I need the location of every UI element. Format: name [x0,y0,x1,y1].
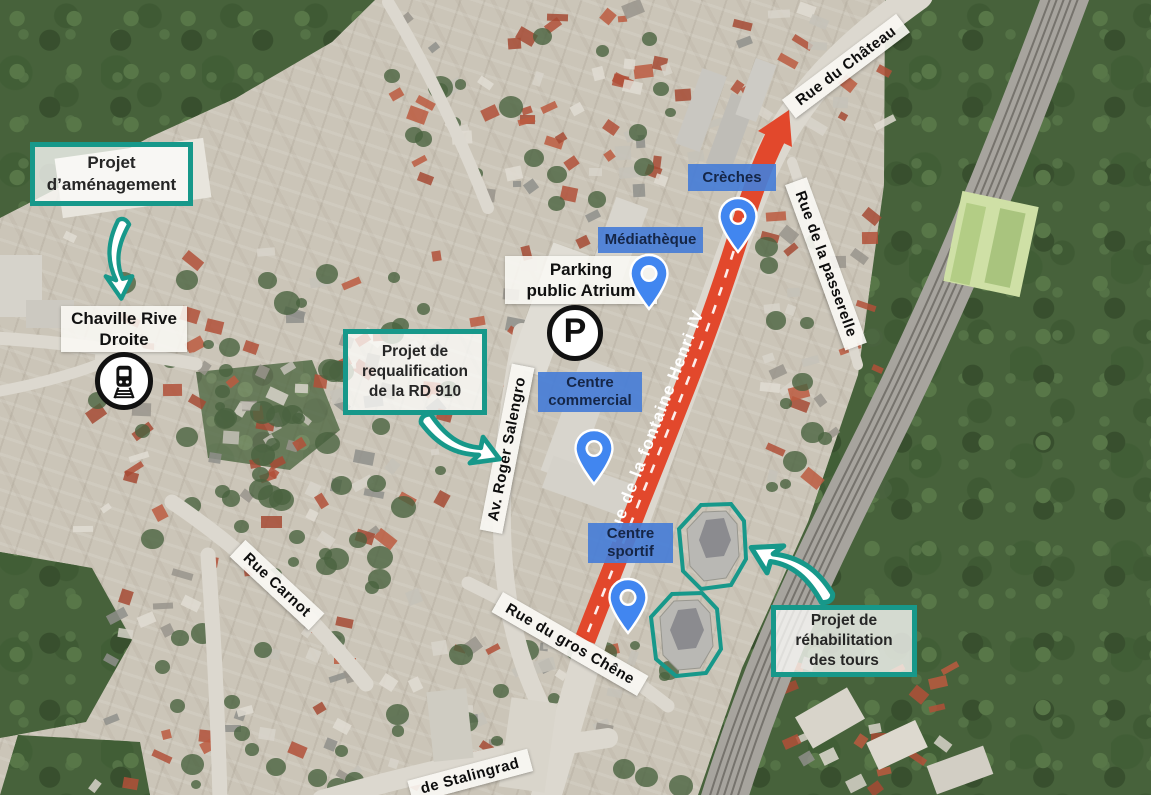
facility-label-commercial: Centre commercial [538,372,642,412]
map-pin-creches-icon[interactable] [716,196,760,254]
facility-label-mediatheque: Médiathèque [598,227,703,253]
train-station-marker[interactable] [95,352,153,410]
facility-label-creches: Crèches [688,164,776,191]
map-pin-commercial-icon[interactable] [572,428,616,486]
map-pin-sportif-icon[interactable] [606,577,650,635]
project-box-amenagement: Projet d’aménagement [30,142,193,206]
map-pin-mediatheque-icon[interactable] [627,253,671,311]
station-name-label: Chaville Rive Droite [61,306,187,352]
map-canvas: Rue de la fontaine Henri IV Rue du Châte… [0,0,1151,795]
parking-marker[interactable]: P [547,305,603,361]
parking-icon: P [564,312,587,351]
train-icon [105,362,143,400]
facility-label-sportif: Centre sportif [588,523,673,563]
project-box-tours: Projet de réhabilitation des tours [771,605,917,677]
project-box-rd910: Projet de requalification de la RD 910 [343,329,487,415]
callout-arrow-amenagement-icon [86,212,159,304]
